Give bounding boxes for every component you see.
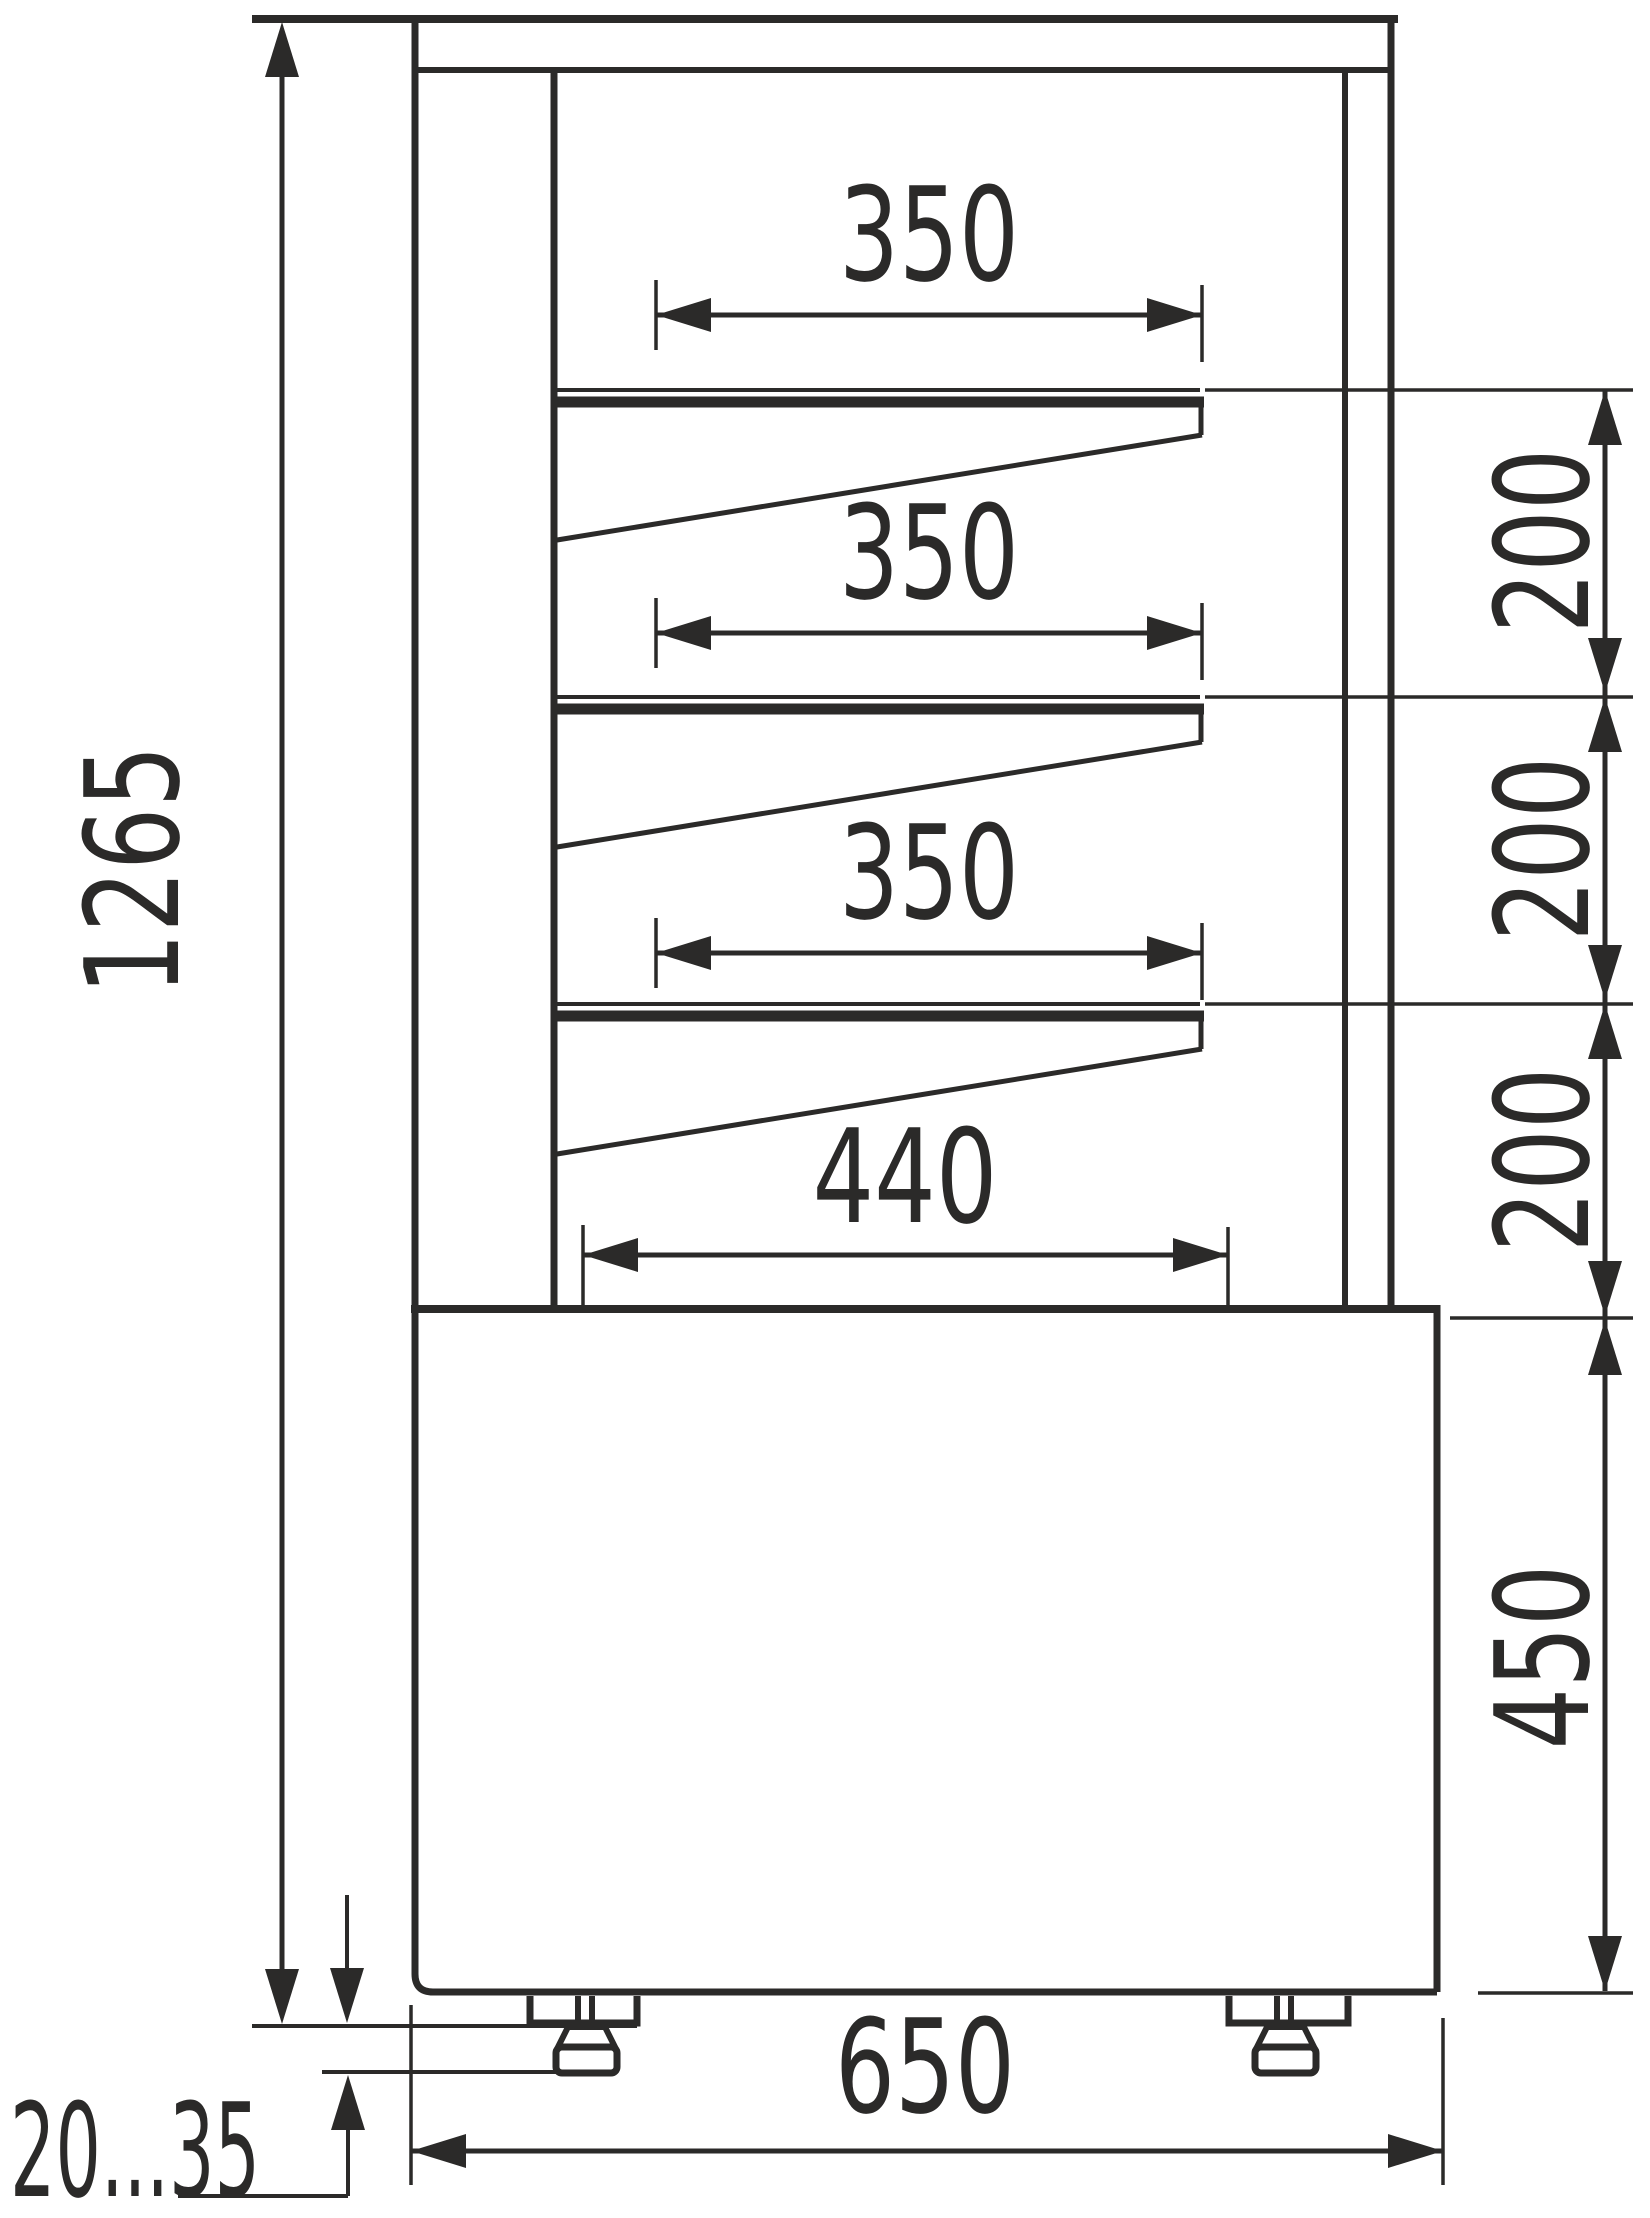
top-canopy (252, 19, 1398, 70)
dim-label-shelf-depth-3: 350 (839, 797, 1019, 949)
dim-label-shelf-pitch-2: 200 (1467, 757, 1619, 942)
leg-right (1229, 1996, 1348, 2073)
dim-chain-right: 200 200 200 450 (1450, 390, 1633, 1993)
dim-label-foot-adjust: 20...35 (10, 2075, 260, 2218)
drawing-canvas: 1265 350 350 350 440 (0, 0, 1650, 2218)
dim-foot-adjust: 20...35 (10, 1895, 365, 2218)
dim-label-shelf-pitch-1: 200 (1467, 449, 1619, 634)
dim-label-base-height: 450 (1467, 1565, 1619, 1750)
dim-label-bottom-depth: 440 (813, 1101, 998, 1253)
dim-label-shelf-depth-2: 350 (839, 477, 1019, 629)
dim-shelf-depth-3: 350 (656, 797, 1202, 1000)
dimension-drawing: 1265 350 350 350 440 (0, 0, 1650, 2218)
dim-label-shelf-depth-1: 350 (839, 159, 1019, 311)
dim-label-shelf-pitch-3: 200 (1467, 1068, 1619, 1253)
dim-shelf-depth-2: 350 (656, 477, 1202, 680)
dim-label-overall-depth: 650 (835, 1991, 1015, 2143)
dim-overall-height: 1265 (57, 22, 299, 2024)
leg-left (530, 1996, 637, 2073)
dim-shelf-depth-1: 350 (656, 159, 1202, 362)
dim-label-overall-height: 1265 (57, 745, 209, 995)
